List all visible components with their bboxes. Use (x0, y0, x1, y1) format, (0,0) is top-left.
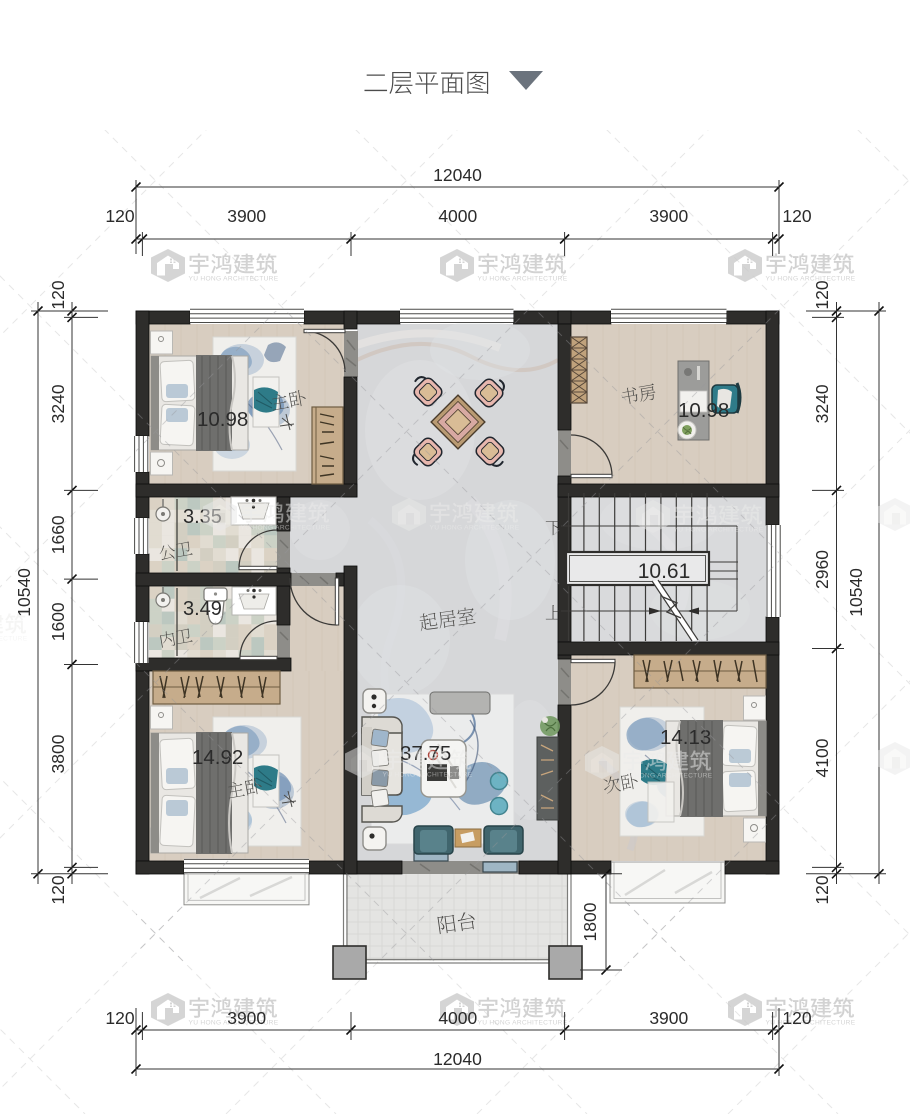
svg-text:120: 120 (782, 206, 811, 226)
svg-text:1600: 1600 (48, 602, 68, 641)
svg-text:12040: 12040 (433, 1049, 482, 1069)
svg-text:3240: 3240 (812, 384, 832, 423)
svg-text:120: 120 (48, 875, 68, 904)
svg-text:3800: 3800 (48, 734, 68, 773)
svg-text:3240: 3240 (48, 384, 68, 423)
svg-text:3900: 3900 (227, 1008, 266, 1028)
svg-text:120: 120 (105, 206, 134, 226)
svg-text:12040: 12040 (433, 165, 482, 185)
svg-text:4100: 4100 (812, 738, 832, 777)
svg-text:3900: 3900 (227, 206, 266, 226)
svg-text:10.61: 10.61 (638, 560, 691, 583)
svg-text:10.98: 10.98 (678, 399, 729, 422)
svg-text:120: 120 (105, 1008, 134, 1028)
svg-text:1800: 1800 (580, 902, 600, 941)
svg-text:10540: 10540 (846, 568, 866, 617)
svg-text:4000: 4000 (438, 206, 477, 226)
svg-text:10540: 10540 (14, 568, 34, 617)
svg-text:14.13: 14.13 (660, 726, 711, 749)
svg-text:4000: 4000 (438, 1008, 477, 1028)
svg-text:120: 120 (812, 280, 832, 309)
svg-text:120: 120 (782, 1008, 811, 1028)
svg-text:1660: 1660 (48, 515, 68, 554)
svg-text:10.98: 10.98 (197, 408, 248, 431)
svg-text:3900: 3900 (649, 1008, 688, 1028)
svg-text:37.75: 37.75 (400, 742, 451, 765)
svg-text:3900: 3900 (649, 206, 688, 226)
svg-text:2960: 2960 (812, 550, 832, 589)
svg-text:3.49: 3.49 (183, 598, 222, 620)
svg-text:14.92: 14.92 (192, 746, 243, 769)
svg-text:120: 120 (812, 875, 832, 904)
svg-text:120: 120 (48, 280, 68, 309)
